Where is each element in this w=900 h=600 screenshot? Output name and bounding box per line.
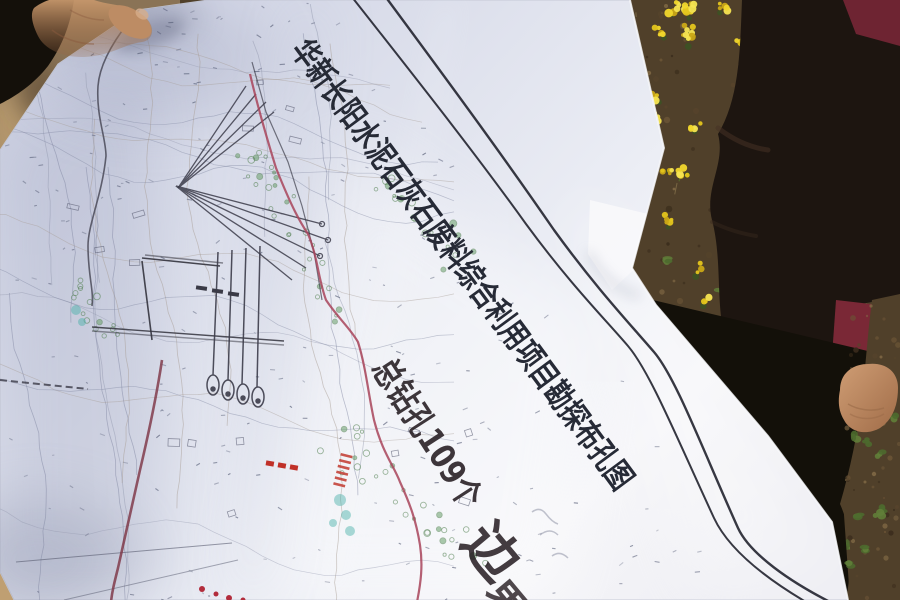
soil-dot [660, 59, 663, 62]
soil-dot [893, 515, 898, 520]
soil-dot [872, 353, 877, 358]
vegetation-symbol [341, 426, 347, 432]
flower-blossom [674, 0, 679, 5]
flower-blossom [668, 172, 672, 176]
soil-dot [883, 555, 888, 560]
map-micro-text [208, 595, 210, 596]
vegetation-symbol [332, 319, 337, 324]
soil-dot [706, 252, 712, 258]
soil-dot [878, 481, 880, 483]
vegetation-symbol [273, 184, 277, 188]
soil-dot [883, 497, 885, 499]
flower-blossom [690, 24, 696, 30]
flower-blossom [698, 266, 705, 273]
flower-blossom [698, 121, 702, 125]
flower-blossom [682, 2, 688, 8]
flower-blossom [688, 126, 694, 132]
soil-dot [895, 505, 899, 509]
flower-blossom [724, 5, 730, 11]
soil-dot [647, 249, 650, 252]
soil-dot [887, 455, 892, 460]
map-micro-text [61, 220, 65, 221]
soil-dot [661, 12, 663, 14]
photo-of-survey-map: 华新长阳水泥石灰石废料综合利用项目勘探布孔图 总钻孔109个 边 界 [0, 0, 900, 600]
map-micro-text [160, 384, 162, 385]
soil-dot [849, 353, 853, 357]
soil-dot [659, 289, 664, 294]
flower-blossom [661, 169, 665, 173]
soil-dot [731, 83, 736, 88]
map-micro-text [655, 446, 660, 447]
soil-dot [675, 70, 680, 75]
flower-blossom [670, 218, 674, 222]
map-micro-text [329, 355, 334, 356]
soil-dot [853, 347, 859, 353]
plant-clump [845, 560, 852, 566]
soil-dot [894, 357, 896, 359]
soil-dot [892, 584, 896, 588]
vegetation-symbol [274, 175, 278, 179]
map-micro-text [16, 280, 19, 281]
flower-blossom [685, 173, 690, 178]
soil-dot [664, 117, 670, 123]
soil-dot [875, 336, 879, 340]
vegetation-symbol [440, 538, 446, 544]
flower-blossom [705, 294, 712, 301]
map-micro-text [421, 128, 426, 129]
soil-dot [857, 343, 860, 346]
vegetation-symbol [285, 200, 289, 204]
soil-dot [691, 147, 695, 151]
flower-leaf [687, 15, 692, 20]
flower-leaf [685, 43, 692, 50]
vegetation-symbol [353, 456, 357, 460]
soil-dot [864, 481, 867, 484]
soil-dot [891, 337, 897, 343]
soil-dot [673, 280, 676, 283]
flower-blossom [686, 36, 691, 41]
soil-dot [683, 282, 686, 285]
soil-dot [693, 108, 699, 114]
vegetation-symbol [336, 307, 342, 313]
map-micro-text [303, 418, 308, 419]
vegetation-symbol [236, 154, 240, 158]
vegetation-symbol [273, 171, 276, 174]
soil-dot [872, 472, 876, 476]
soil-dot [876, 547, 880, 551]
plant-clump [851, 434, 856, 442]
plant-clump [892, 413, 899, 419]
soil-dot [888, 530, 893, 535]
soil-dot [850, 315, 856, 321]
map-micro-text [184, 73, 190, 74]
soil-dot [677, 298, 683, 304]
map-micro-text [619, 583, 622, 584]
flower-blossom [660, 31, 666, 37]
soil-dot [872, 486, 875, 489]
soil-dot [845, 475, 850, 480]
soil-dot [880, 356, 883, 359]
soil-dot [884, 531, 886, 533]
soil-dot [646, 56, 649, 59]
soil-dot [865, 596, 869, 600]
soil-dot [673, 188, 676, 191]
map-micro-text [121, 183, 124, 184]
soil-dot [893, 509, 895, 511]
flower-blossom [664, 217, 669, 222]
soil-dot [666, 242, 669, 245]
vegetation-symbol [257, 174, 263, 180]
flower-blossom [734, 38, 739, 43]
flower-leaf [717, 10, 722, 15]
map-micro-text [362, 580, 365, 581]
vegetation-symbol [437, 512, 443, 518]
soil-dot [653, 76, 659, 82]
soil-dot [659, 15, 663, 19]
flower-blossom [664, 9, 673, 18]
soil-dot [881, 466, 884, 469]
plant-clump [878, 449, 886, 454]
flower-blossom [674, 6, 681, 13]
plant-clump [853, 514, 863, 521]
flower-leaf [666, 225, 671, 230]
soil-dot [847, 535, 852, 540]
soil-dot [882, 523, 887, 528]
map-micro-text [307, 3, 309, 4]
vegetation-symbol [97, 319, 102, 324]
soil-dot [664, 4, 668, 8]
flower-blossom [688, 5, 696, 13]
flower-blossom [652, 25, 658, 31]
plant-clump [876, 509, 884, 516]
soil-dot [882, 317, 885, 320]
map-micro-text [182, 33, 186, 34]
soil-dot [664, 105, 667, 108]
plant-clump [664, 259, 672, 264]
soil-dot [698, 245, 701, 248]
vegetation-symbol [436, 527, 441, 532]
flower-blossom [676, 172, 681, 177]
flower-blossom [718, 6, 722, 10]
photo-canvas: 华新长阳水泥石灰石废料综合利用项目勘探布孔图 总钻孔109个 边 界 [0, 0, 900, 600]
soil-dot [856, 575, 859, 578]
soil-dot [866, 315, 868, 317]
flower-blossom [698, 261, 703, 266]
soil-dot [671, 55, 673, 57]
plant-clump [862, 440, 870, 444]
flower-blossom [718, 2, 722, 6]
soil-dot [845, 426, 850, 431]
map-micro-text [645, 508, 648, 509]
soil-dot [853, 489, 855, 491]
soil-dot [869, 304, 872, 307]
plant-clump [860, 545, 870, 550]
map-micro-text [33, 157, 36, 158]
soil-dot [666, 206, 673, 213]
